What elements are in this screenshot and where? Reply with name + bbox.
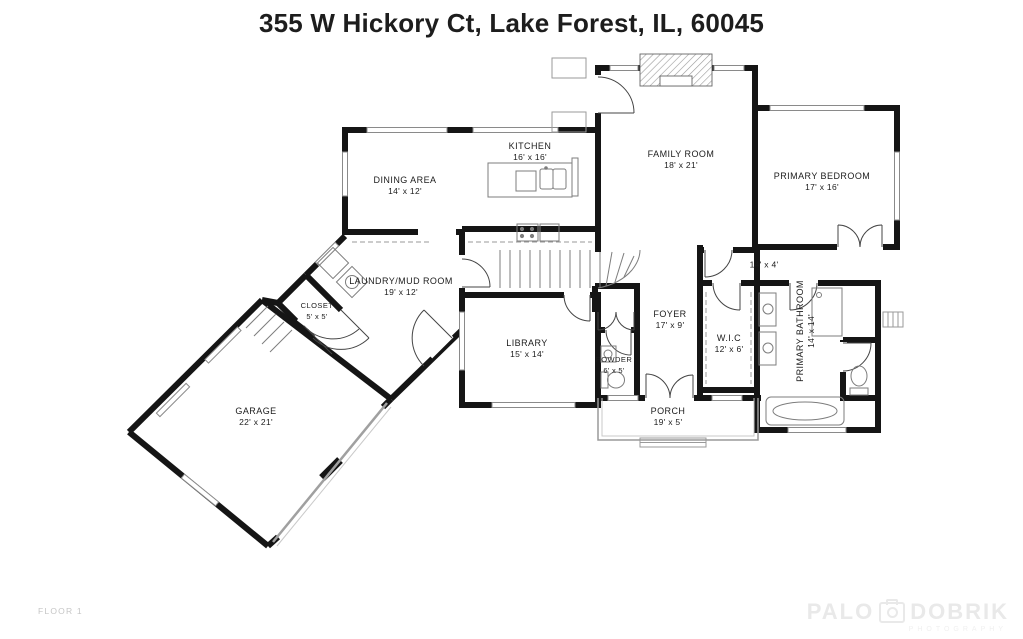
exterior-stoops [552,58,586,132]
powder-fixtures [601,346,625,388]
floor-label: FLOOR 1 [38,606,83,616]
floor-plan-drawing [0,0,1023,639]
main-staircase [500,250,640,288]
watermark-brand-first: PALO [807,599,874,625]
walls [129,65,900,546]
page-title: 355 W Hickory Ct, Lake Forest, IL, 60045 [0,8,1023,39]
door-openings [297,75,883,402]
garage-door [273,403,391,546]
fireplace [640,54,712,86]
ceiling-dashed-lines [352,242,751,384]
door-swings [304,77,882,398]
watermark-brand-second: DOBRIK [910,599,1009,625]
ac-unit [883,312,903,327]
kitchen-island [488,163,572,197]
bathroom-fixtures [759,288,844,425]
camera-icon [879,602,905,623]
water-closet-toilet [850,366,868,395]
floorplan-page: 355 W Hickory Ct, Lake Forest, IL, 60045… [0,0,1023,639]
porch-structure [598,398,758,447]
photographer-watermark: PALO DOBRIK PHOTOGRAPHY [807,599,1009,633]
watermark-tagline: PHOTOGRAPHY [807,626,1007,633]
